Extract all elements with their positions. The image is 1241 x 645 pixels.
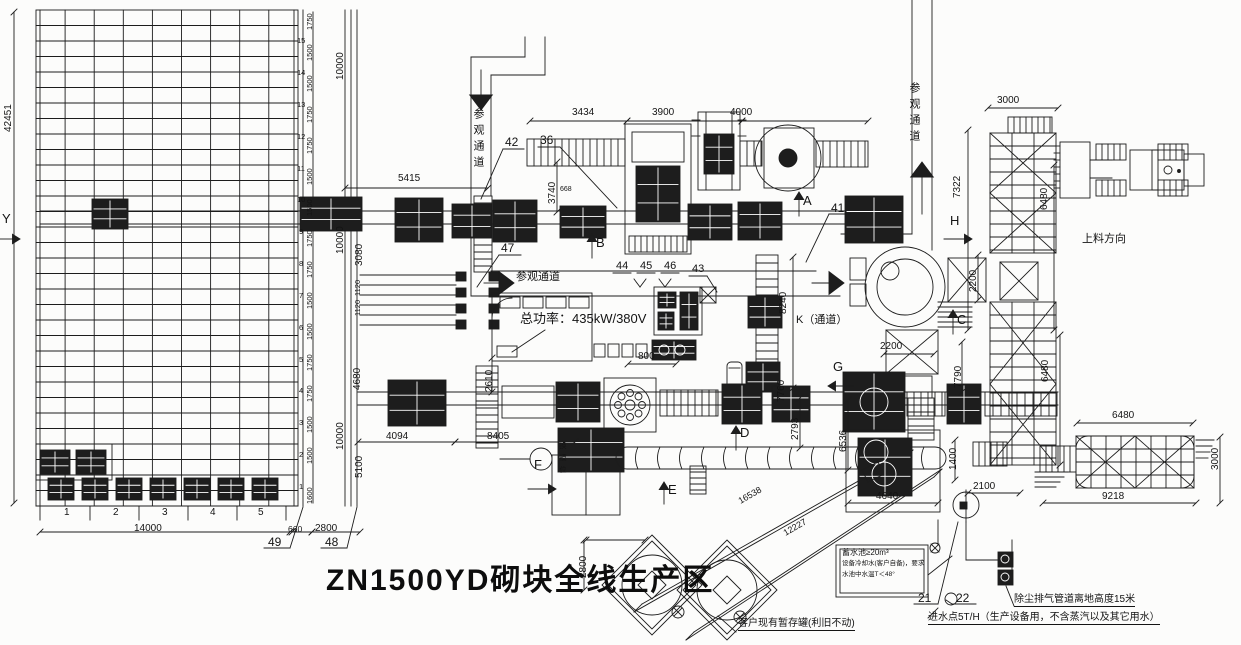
dim-6480-v2: 6480 xyxy=(1041,360,1051,382)
water-pool-note-line3: 水池中水温T＜48° xyxy=(842,572,895,579)
dim-7760: 7760 xyxy=(777,380,787,402)
rack-level-number: 10 xyxy=(297,196,305,204)
bay-number: 2 xyxy=(113,508,119,518)
mold-change-label: 换模位 xyxy=(559,442,566,478)
callout-42: 42 xyxy=(505,136,518,148)
rack-level-number: 13 xyxy=(297,101,305,109)
dim-10000-2: 10000 xyxy=(336,226,346,254)
drawing-sheet: 5415343439004000300080040948405220046402… xyxy=(0,0,1241,645)
rack-pitch-dim: 1500 xyxy=(306,447,314,464)
section-E: E xyxy=(668,483,677,496)
dim-6536: 6536 xyxy=(839,430,849,452)
rack-pitch-dim: 1750 xyxy=(306,106,314,123)
section-C: C xyxy=(957,313,966,326)
section-Y: Y xyxy=(2,212,11,225)
section-A: A xyxy=(803,194,812,207)
dim-4680: 4680 xyxy=(353,368,363,390)
dim-6480-v1: 6480 xyxy=(1040,188,1050,210)
dim-8240: 8240 xyxy=(779,292,789,314)
callout-41: 41 xyxy=(831,202,844,214)
rack-pitch-dim: 1600 xyxy=(306,487,314,504)
bay-number: 3 xyxy=(162,508,168,518)
dim-3740: 3740 xyxy=(548,182,558,204)
dim-4640: 4640 xyxy=(876,492,898,502)
callout-22: 22 xyxy=(956,592,969,604)
dim-8405: 8405 xyxy=(487,432,509,442)
callout-21: 21 xyxy=(918,592,931,604)
rack-level-number: 9 xyxy=(299,228,303,236)
rack-pitch-dim: 1500 xyxy=(306,323,314,340)
rack-pitch-dim: 1750 xyxy=(306,13,314,30)
rack-pitch-dim: 1750 xyxy=(306,385,314,402)
bay-number: 4 xyxy=(210,508,216,518)
rack-level-number: 5 xyxy=(299,356,303,364)
rack-level-number: 14 xyxy=(297,69,305,77)
dim-14000: 14000 xyxy=(134,524,162,534)
section-D: D xyxy=(740,426,749,439)
dim-3000-r: 3000 xyxy=(1211,448,1221,470)
dim-3000-top: 3000 xyxy=(997,96,1019,106)
rack-pitch-dim: 1500 xyxy=(306,416,314,433)
rack-pitch-dim: 1500 xyxy=(306,168,314,185)
dim-10000-3: 10000 xyxy=(336,422,346,450)
dim-668: 668 xyxy=(560,186,572,193)
dim-4094: 4094 xyxy=(386,432,408,442)
dim-2800-b: 2800 xyxy=(315,524,337,534)
section-B: B xyxy=(596,236,605,249)
label-layer: 5415343439004000300080040948405220046402… xyxy=(0,0,1241,645)
dim-3900: 3900 xyxy=(652,108,674,118)
dim-10000-1: 10000 xyxy=(336,52,346,80)
dim-5100: 5100 xyxy=(355,456,365,478)
rack-level-number: 1 xyxy=(299,483,303,491)
dim-9218: 9218 xyxy=(1102,492,1124,502)
drawing-title: ZN1500YD砌块全线生产区 xyxy=(326,566,714,596)
rack-pitch-dim: 1750 xyxy=(306,137,314,154)
rack-level-number: 8 xyxy=(299,260,303,268)
callout-44: 44 xyxy=(616,261,628,272)
rack-level-number: 6 xyxy=(299,324,303,332)
water-pool-note-line1: 蓄水池≥20m³ xyxy=(842,549,889,557)
rack-pitch-dim: 1750 xyxy=(306,354,314,371)
callout-48: 48 xyxy=(325,536,338,548)
rack-level-number: 3 xyxy=(299,419,303,427)
rack-pitch-dim: 1750 xyxy=(306,230,314,247)
rack-pitch-dim: 1500 xyxy=(306,292,314,309)
water-pool-note-line2: 设备冷却水(客户自备)，要求 xyxy=(842,561,924,568)
dim-2610: 2610 xyxy=(485,370,495,392)
callout-46: 46 xyxy=(664,261,676,272)
dim-7790: 7790 xyxy=(954,366,964,388)
dim-6480-h: 6480 xyxy=(1112,411,1134,421)
dim-2793: 2793 xyxy=(791,418,801,440)
section-F: F xyxy=(534,458,542,471)
dim-2200-v: 2200 xyxy=(969,270,979,292)
dim-4000: 4000 xyxy=(730,108,752,118)
rack-pitch-dim: 1500 xyxy=(306,199,314,216)
section-H: H xyxy=(950,214,959,227)
dust-exhaust-note: 除尘排气管道离地高度15米 xyxy=(1014,595,1135,607)
rack-pitch-dim: 1500 xyxy=(306,75,314,92)
dim-660: 660 xyxy=(288,525,302,534)
callout-43: 43 xyxy=(692,264,704,275)
water-inlet-note: 进水点5T/H（生产设备用，不含蒸汽以及其它用水） xyxy=(928,613,1160,625)
dim-3434: 3434 xyxy=(572,108,594,118)
existing-tank-note: 客户现有暂存罐(利旧不动) xyxy=(738,619,855,631)
screw-conveyor-dim-16538: 16538 xyxy=(737,485,763,505)
total-power-note: 总功率：435kW/380V xyxy=(520,312,646,325)
rack-level-number: 11 xyxy=(297,165,305,173)
rack-level-number: 2 xyxy=(299,451,303,459)
bay-number: 1 xyxy=(64,508,70,518)
dim-1120-1: 1120 xyxy=(354,280,362,296)
callout-47: 47 xyxy=(501,242,514,254)
rack-level-number: 7 xyxy=(299,292,303,300)
dim-1400: 1400 xyxy=(949,448,959,470)
callout-45: 45 xyxy=(640,261,652,272)
rack-pitch-dim: 1500 xyxy=(306,44,314,61)
callout-36: 36 xyxy=(540,134,553,146)
dim-42451: 42451 xyxy=(4,104,14,132)
bay-number: 5 xyxy=(258,508,264,518)
rack-level-number: 4 xyxy=(299,387,303,395)
rack-level-number: 15 xyxy=(297,37,305,45)
rack-pitch-dim: 1750 xyxy=(306,261,314,278)
dim-3080: 3080 xyxy=(355,244,365,266)
k-passage-label: K（通道） xyxy=(796,315,847,326)
visitor-passage-label-mid: 参观通道 xyxy=(516,272,560,283)
dim-5415: 5415 xyxy=(398,174,420,184)
visitor-passage-label-top: 参观通道 xyxy=(472,108,483,172)
section-G: G xyxy=(833,360,843,373)
rack-level-number: 12 xyxy=(297,133,305,141)
callout-49: 49 xyxy=(268,536,281,548)
dim-800: 800 xyxy=(638,352,655,362)
dim-2200-h: 2200 xyxy=(880,342,902,352)
feeding-direction-label: 上料方向 xyxy=(1082,234,1126,245)
dim-7322: 7322 xyxy=(953,176,963,198)
dim-2100: 2100 xyxy=(973,482,995,492)
screw-conveyor-dim-12227: 12227 xyxy=(782,517,808,537)
dim-1120-2: 1120 xyxy=(354,300,362,316)
visitor-passage-label-right: 参观通道 xyxy=(908,82,919,146)
